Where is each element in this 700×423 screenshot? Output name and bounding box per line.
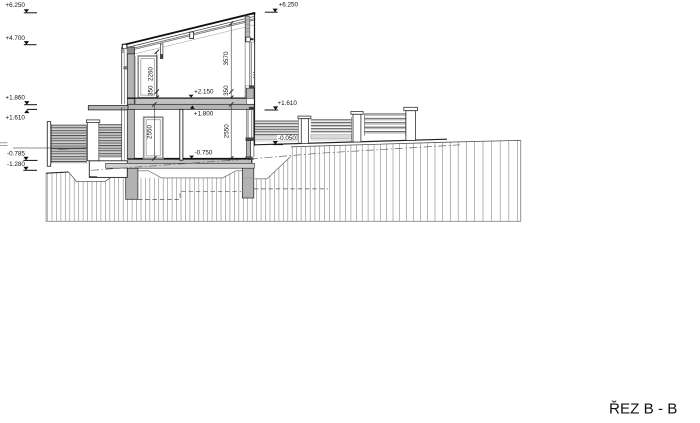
svg-text:350: 350 — [148, 85, 155, 96]
svg-text:-0.785: -0.785 — [7, 150, 25, 157]
svg-text:-1.280: -1.280 — [7, 161, 25, 168]
svg-text:2550: 2550 — [147, 125, 154, 140]
svg-text:3570: 3570 — [223, 51, 230, 66]
svg-text:+1.860: +1.860 — [5, 95, 25, 102]
svg-text:2550: 2550 — [224, 124, 231, 139]
svg-text:+6.250: +6.250 — [5, 2, 25, 9]
svg-text:350: 350 — [223, 85, 230, 96]
svg-text:ŘEZ B - B: ŘEZ B - B — [609, 401, 677, 418]
svg-text:2260: 2260 — [148, 67, 155, 82]
svg-text:+6.250: +6.250 — [279, 1, 299, 8]
svg-text:+1.610: +1.610 — [278, 100, 298, 107]
svg-text:-0.750: -0.750 — [195, 149, 213, 156]
svg-text:+2.150: +2.150 — [194, 88, 214, 95]
svg-text:+1.800: +1.800 — [194, 110, 214, 117]
svg-text:-0.050: -0.050 — [278, 135, 296, 142]
svg-text:+4.700: +4.700 — [5, 35, 25, 42]
svg-text:+1.610: +1.610 — [5, 114, 25, 121]
